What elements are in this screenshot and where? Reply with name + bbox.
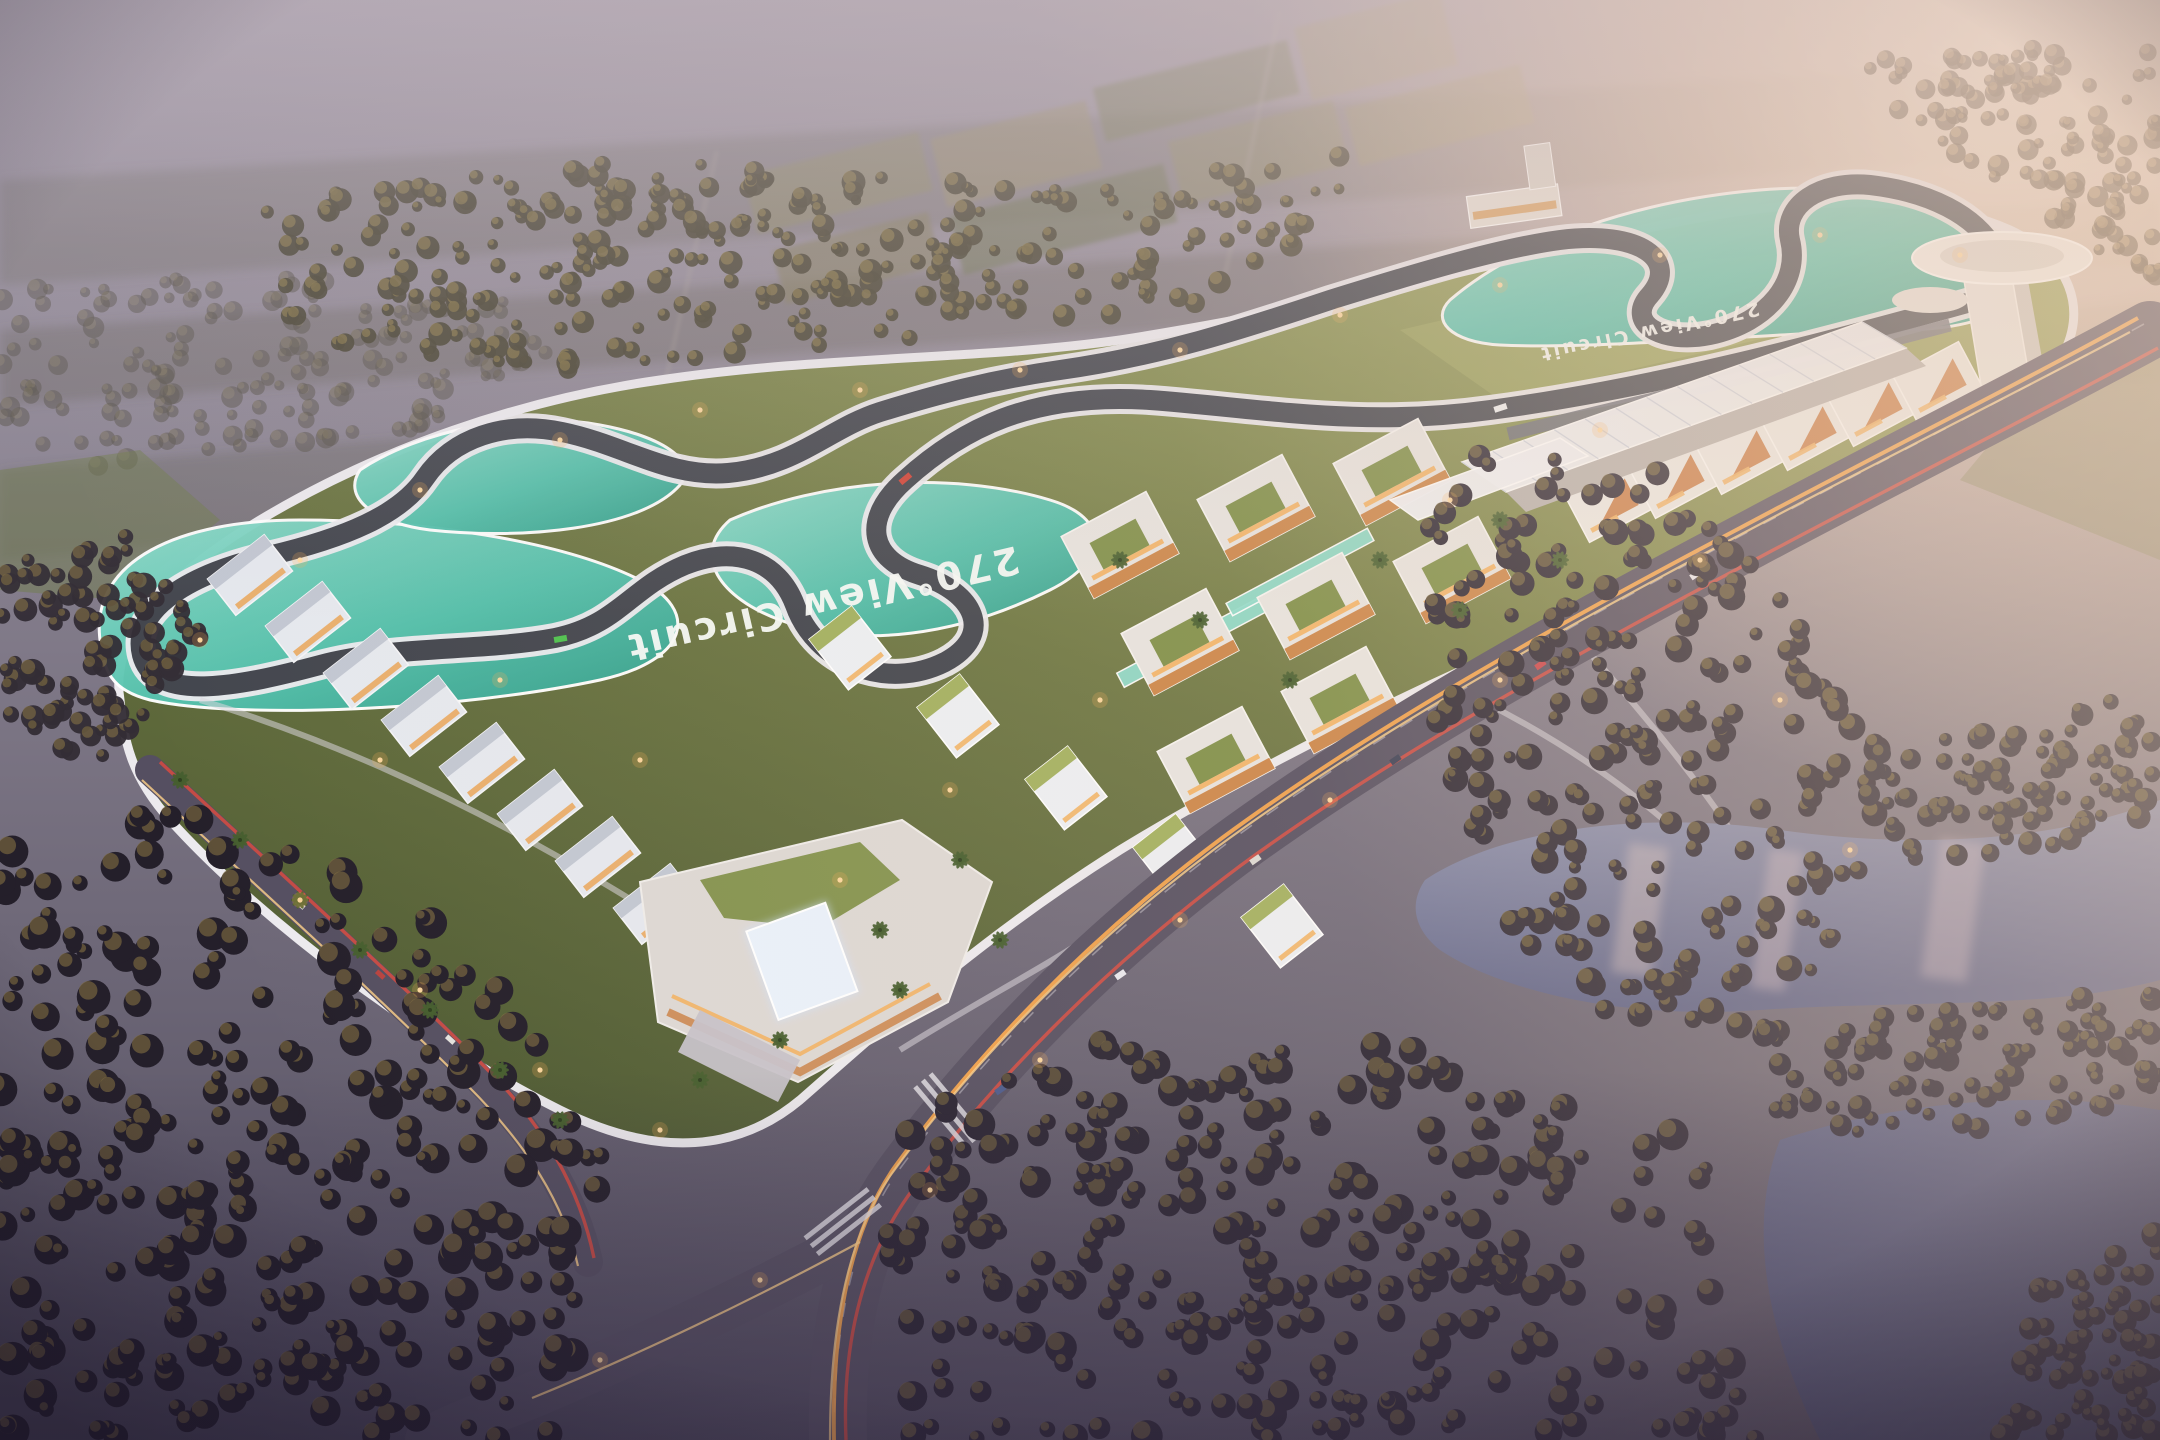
aerial-rendering: 270°View Circuit 270°View Circuit <box>0 0 2160 1440</box>
scene-canvas: 270°View Circuit 270°View Circuit <box>0 0 2160 1440</box>
vignette <box>0 0 2160 1440</box>
